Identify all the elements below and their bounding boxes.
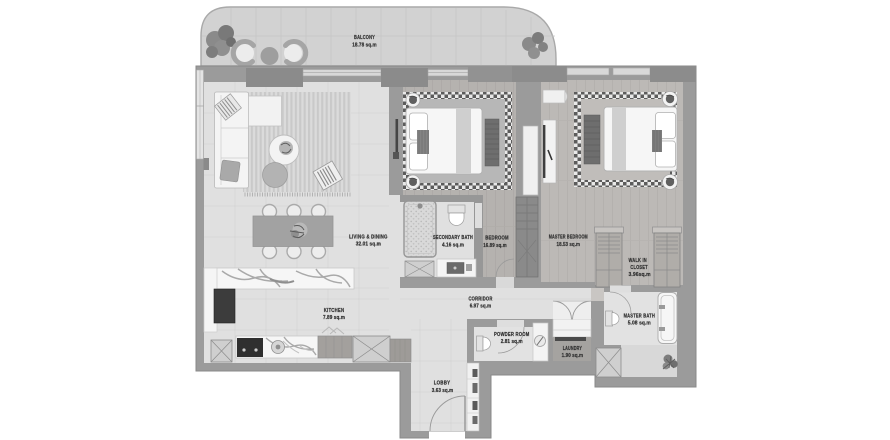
svg-text:SECONDARY BATH: SECONDARY BATH [433,235,473,241]
svg-text:1.90 sq.m: 1.90 sq.m [562,353,584,359]
svg-text:LOBBY: LOBBY [434,381,451,387]
svg-text:BEDROOM: BEDROOM [485,236,509,242]
svg-text:18.78 sq.m: 18.78 sq.m [352,42,377,48]
svg-text:CLOSET: CLOSET [630,265,648,271]
svg-text:6.97 sq.m: 6.97 sq.m [470,304,492,310]
svg-text:7.89 sq.m: 7.89 sq.m [323,315,345,321]
svg-text:3.96sq.m: 3.96sq.m [629,272,652,278]
svg-text:MASTER BATH: MASTER BATH [624,314,655,320]
svg-text:16.89 sq.m: 16.89 sq.m [483,243,507,249]
svg-text:BALCONY: BALCONY [354,35,375,41]
svg-text:LAUNDRY: LAUNDRY [563,346,583,352]
svg-text:POWDER ROOM: POWDER ROOM [494,332,530,338]
svg-text:WALK IN: WALK IN [629,258,647,264]
svg-text:18.53 sq.m: 18.53 sq.m [557,242,581,248]
svg-text:3.63 sq.m: 3.63 sq.m [432,388,454,394]
svg-text:5.08 sq.m: 5.08 sq.m [628,321,652,327]
svg-text:KITCHEN: KITCHEN [324,308,345,314]
svg-text:CORRIDOR: CORRIDOR [469,297,493,303]
svg-text:4.16 sq.m: 4.16 sq.m [442,242,464,248]
svg-text:MASTER BEDROOM: MASTER BEDROOM [549,234,588,240]
svg-text:32.01 sq.m: 32.01 sq.m [356,242,382,248]
svg-text:LIVING & DINING: LIVING & DINING [349,235,388,241]
svg-text:2.81 sq.m: 2.81 sq.m [501,339,523,345]
